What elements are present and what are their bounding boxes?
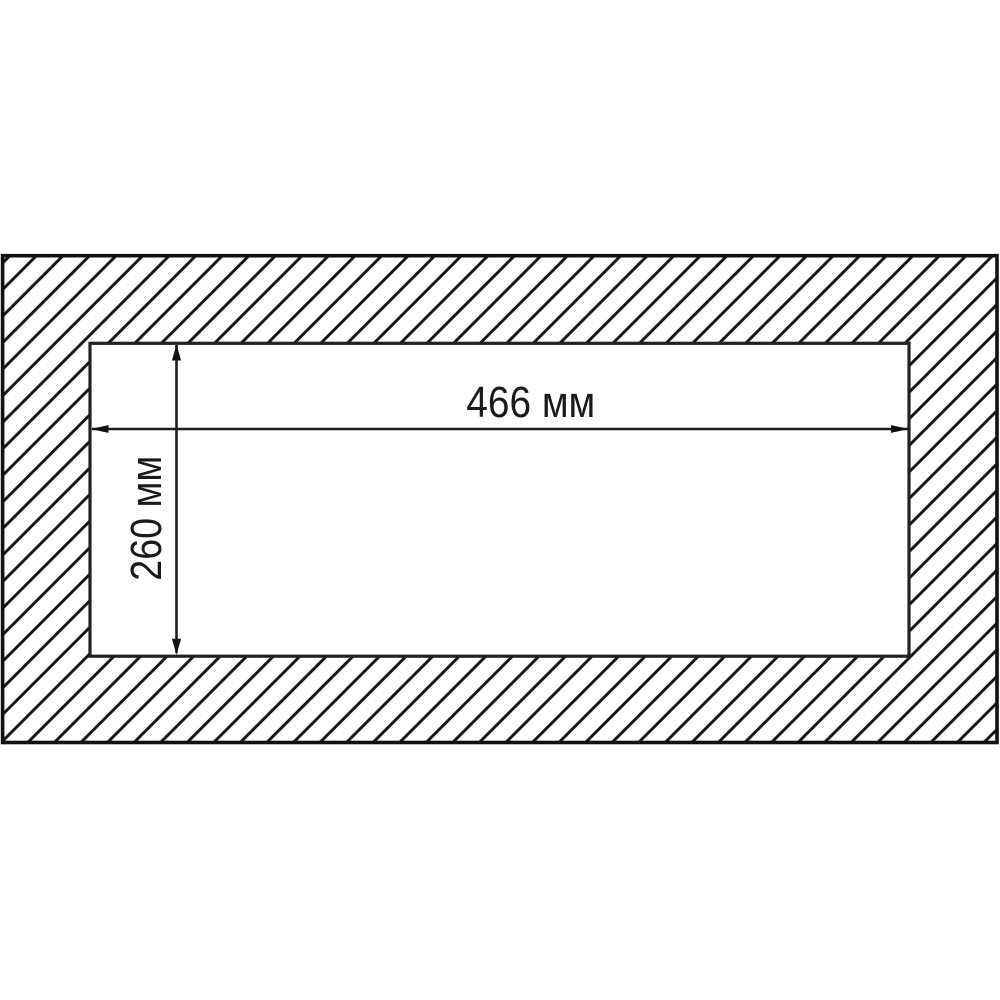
- svg-text:260 мм: 260 мм: [122, 456, 171, 581]
- svg-text:466 мм: 466 мм: [466, 378, 595, 427]
